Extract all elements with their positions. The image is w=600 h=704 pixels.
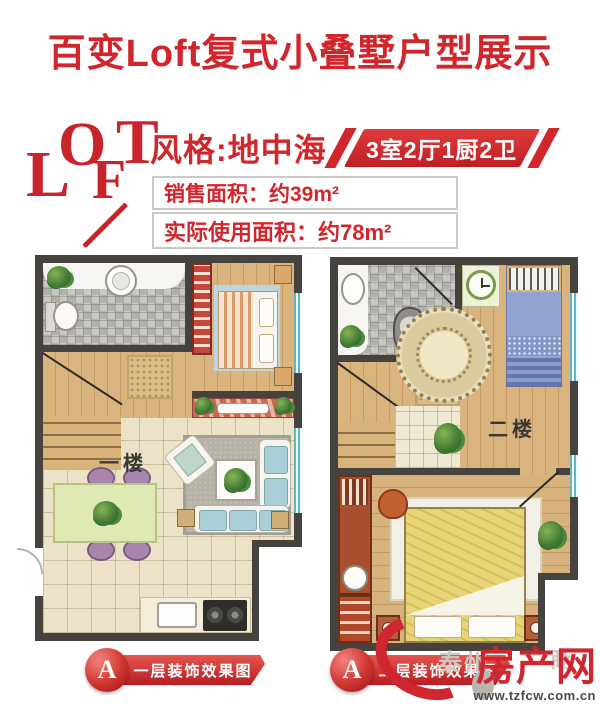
clock-icon: [466, 270, 496, 300]
plant-icon: [340, 325, 362, 347]
page-title: 百变Loft复式小叠墅户型展示: [0, 22, 600, 77]
stairs-rail-line: [42, 352, 123, 405]
plant-icon: [47, 266, 71, 288]
badge-letter: A: [98, 655, 117, 685]
single-bed-icon: [506, 265, 562, 387]
floorplan-first-floor: 一楼: [35, 255, 302, 641]
plant-icon: [538, 521, 564, 549]
chair-icon: [378, 489, 408, 519]
site-watermark: 泰州 商 房产网 www.tzfcw.com.cn: [388, 624, 598, 704]
caption-badge-floor1: 一层装饰效果图 A: [85, 648, 267, 692]
plant-icon: [434, 423, 462, 453]
loft-logo: L O F T: [28, 116, 150, 258]
kitchen-counter: [140, 597, 251, 633]
interior-wall: [43, 345, 192, 352]
badge-letter: A: [343, 655, 362, 685]
door-swing-line: [415, 267, 453, 305]
coffee-table-icon: [215, 459, 257, 501]
floor1-label: 一楼: [99, 447, 147, 476]
bookshelf-icon: [338, 595, 372, 643]
side-table-icon: [177, 509, 195, 527]
plant-icon: [275, 397, 292, 414]
kitchen-sink-icon: [157, 602, 197, 628]
usable-area-box: 实际使用面积：约78m²: [152, 212, 458, 249]
plant-icon: [93, 501, 119, 525]
badge-letter-circle: A: [85, 648, 129, 692]
caption-banner: 一层装饰效果图: [107, 655, 265, 685]
round-rug-icon: [396, 307, 492, 403]
clock-icon: [342, 565, 368, 591]
wall-notch: [252, 540, 302, 641]
interior-wall: [338, 468, 520, 475]
plant-icon: [195, 397, 212, 414]
nightstand-icon: [274, 265, 292, 284]
stairs: [43, 352, 121, 416]
dining-table-icon: [53, 483, 157, 543]
rooms-banner: 3室2厅1厨2卫: [344, 129, 540, 167]
window: [570, 293, 578, 381]
usable-area-text: 实际使用面积：约78m²: [164, 215, 391, 247]
books-icon: [342, 479, 368, 505]
doormat-icon: [127, 355, 173, 399]
window: [294, 428, 302, 513]
window: [294, 293, 302, 373]
tv-icon: [217, 403, 269, 414]
floorplan-second-floor: 二楼: [330, 257, 578, 651]
style-row: 风格:地中海 3室2厅1厨2卫: [150, 127, 557, 169]
pillow-icon: [509, 268, 559, 290]
caption-text: 一层装饰效果图: [119, 660, 252, 681]
toilet-icon: [45, 299, 81, 333]
sink-icon: [341, 273, 365, 305]
bed-blanket: [219, 292, 253, 368]
pillow-icon: [259, 334, 274, 363]
floor2-label: 二楼: [488, 413, 536, 442]
poster-page: 百变Loft复式小叠墅户型展示 L O F T 风格:地中海 3室2厅1厨2卫 …: [0, 0, 600, 704]
wall-clock-panel: [462, 265, 500, 307]
wardrobe-icon: [192, 263, 212, 355]
style-label: 风格:地中海: [150, 125, 327, 171]
stove-icon: [203, 600, 247, 631]
sales-area-box: 销售面积：约39m²: [152, 176, 458, 210]
double-bed-icon: [218, 291, 278, 369]
bedroom: [192, 263, 294, 391]
sofa-icon: [259, 439, 291, 509]
plant-icon: [224, 468, 248, 492]
watermark-url: www.tzfcw.com.cn: [473, 688, 596, 703]
sales-area-text: 销售面积：约39m²: [164, 178, 339, 208]
pillow-icon: [259, 298, 274, 327]
bathroom: [43, 263, 185, 345]
side-table-icon: [271, 511, 289, 529]
watermark-site-name: 房产网: [476, 647, 596, 687]
nightstand-icon: [274, 367, 292, 386]
badge-letter-circle: A: [330, 648, 374, 692]
window: [570, 455, 578, 497]
sink-icon: [105, 265, 137, 297]
rooms-banner-text: 3室2厅1厨2卫: [366, 131, 517, 165]
